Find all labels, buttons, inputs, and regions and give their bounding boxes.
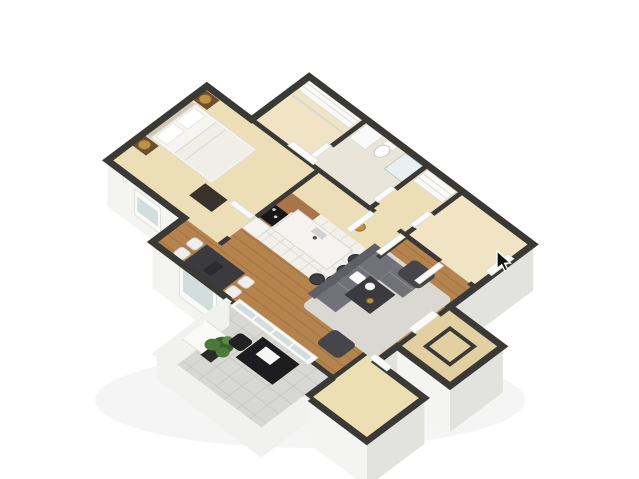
screenshot-canvas — [0, 0, 639, 479]
floor-plan-image[interactable] — [0, 0, 639, 479]
